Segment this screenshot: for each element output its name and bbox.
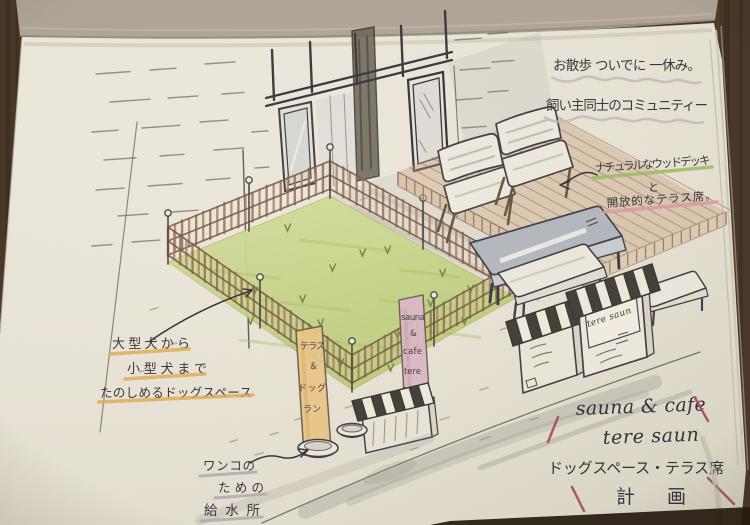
- photo-of-sketchbook: tere saun テラス ＆ ドッグ ラン sauna & cafe tere…: [0, 0, 750, 525]
- water-note-line1: ワンコの: [203, 458, 255, 473]
- cafe-banner-text: cafe: [403, 347, 422, 357]
- door-frame-left: [279, 102, 316, 191]
- water-bowl-2: [337, 424, 367, 438]
- cafe-banner-text: &: [410, 329, 417, 339]
- stroll-line2: 飼い主同士のコミュニティー: [546, 98, 708, 114]
- title-line3: ドッグスペース・テラス席: [548, 459, 724, 477]
- terrace-banner-text: テラス: [300, 341, 325, 352]
- cafe-banner-text: sauna: [401, 313, 425, 323]
- terrace-banner-text: ドッグ: [298, 382, 326, 394]
- title-line2: tere saun: [602, 424, 699, 449]
- title-line1: sauna & cafe: [575, 393, 706, 420]
- terrace-banner-text: ラン: [303, 404, 321, 415]
- stroll-line1: お散歩 ついでに 一休み。: [553, 58, 701, 74]
- water-note-line2: ための: [218, 480, 264, 495]
- cafe-banner-text: tere: [404, 367, 421, 377]
- terrace-banner-text: ＆: [309, 362, 318, 372]
